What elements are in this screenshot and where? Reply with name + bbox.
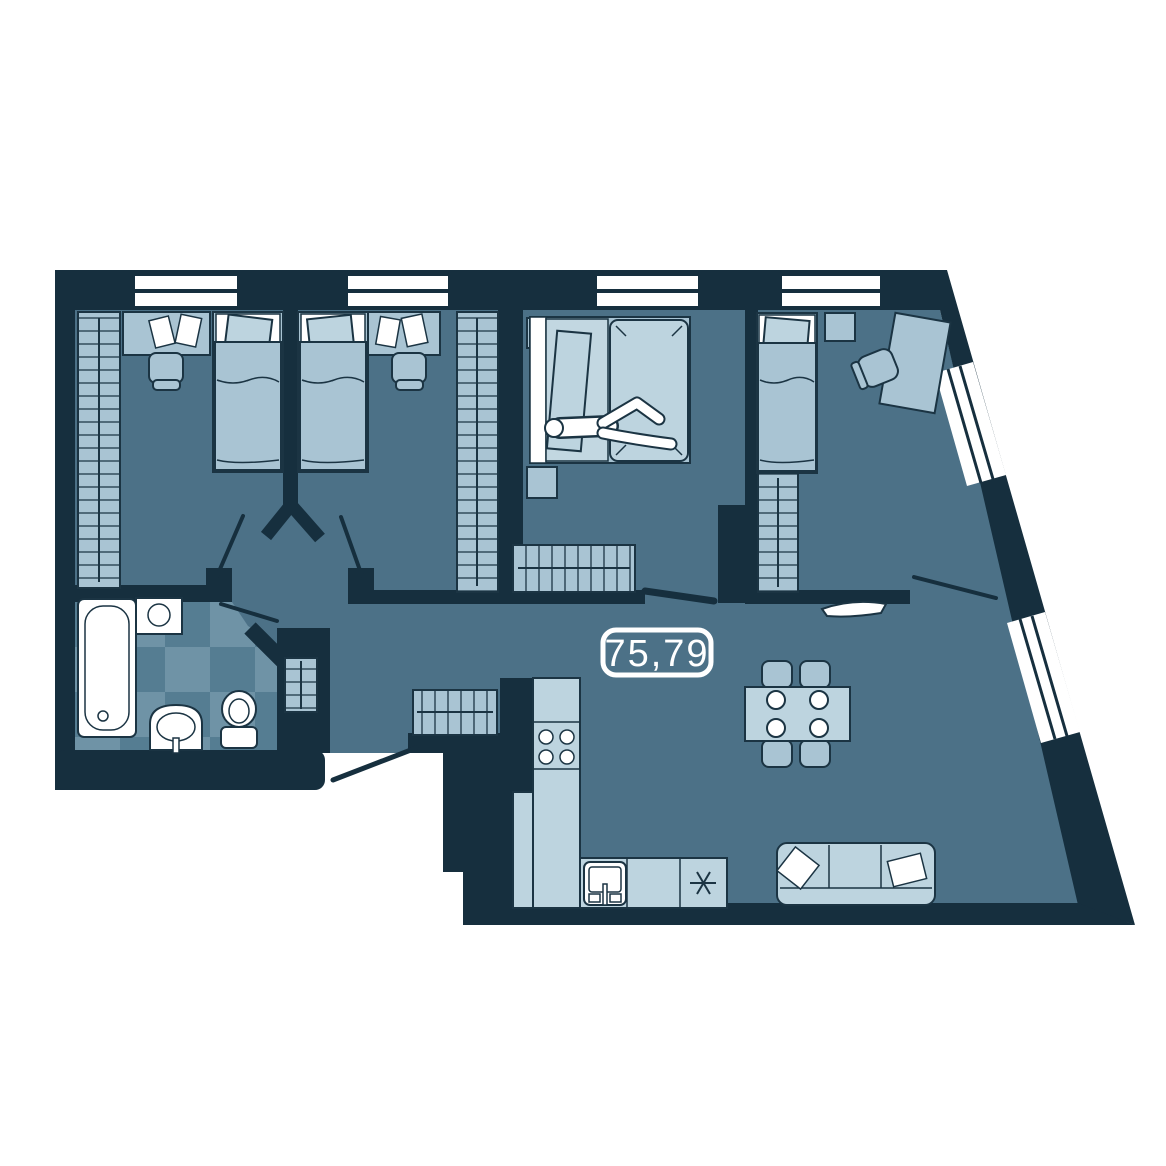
left-wall — [55, 270, 75, 790]
nightstand-icon — [825, 313, 855, 341]
hallway — [413, 690, 497, 735]
dining-table-icon — [745, 687, 850, 741]
sofa-icon — [777, 843, 935, 905]
wardrobe-icon — [78, 312, 120, 588]
wall-notch — [443, 872, 463, 925]
wardrobe-icon — [513, 545, 635, 592]
nightstand-icon — [527, 467, 557, 498]
area-value: 75,79 — [604, 633, 709, 675]
bedroom2-master-wall — [498, 270, 523, 592]
chair-icon — [149, 353, 183, 390]
desk-icon — [368, 312, 440, 355]
window-bedroom3 — [782, 276, 880, 306]
coat-rack-icon — [413, 690, 497, 735]
chair-icon — [392, 353, 426, 390]
apartment-floorplan: 75,79 — [0, 0, 1166, 1166]
wardrobe-icon — [457, 312, 498, 592]
area-label: 75,79 — [603, 630, 711, 675]
sink-icon — [150, 705, 202, 753]
single-bed-icon — [213, 312, 283, 472]
single-bed-icon — [757, 313, 817, 473]
kitchen-sink-icon — [584, 862, 626, 905]
window-master — [597, 276, 698, 306]
window-bedroom2 — [348, 276, 448, 306]
bathtub-icon — [78, 599, 136, 737]
window-bedroom1 — [135, 276, 237, 306]
washing-machine-icon — [136, 598, 182, 634]
toilet-icon — [221, 691, 257, 748]
bathroom-bottom-wall — [55, 750, 325, 790]
wardrobe-icon — [758, 473, 798, 592]
shelf-icon — [285, 658, 317, 712]
desk-icon — [123, 312, 210, 355]
bedroom1-bedroom2-wall — [283, 270, 298, 510]
floorplan-page: 75,79 — [0, 0, 1166, 1166]
single-bed-icon — [298, 312, 368, 472]
